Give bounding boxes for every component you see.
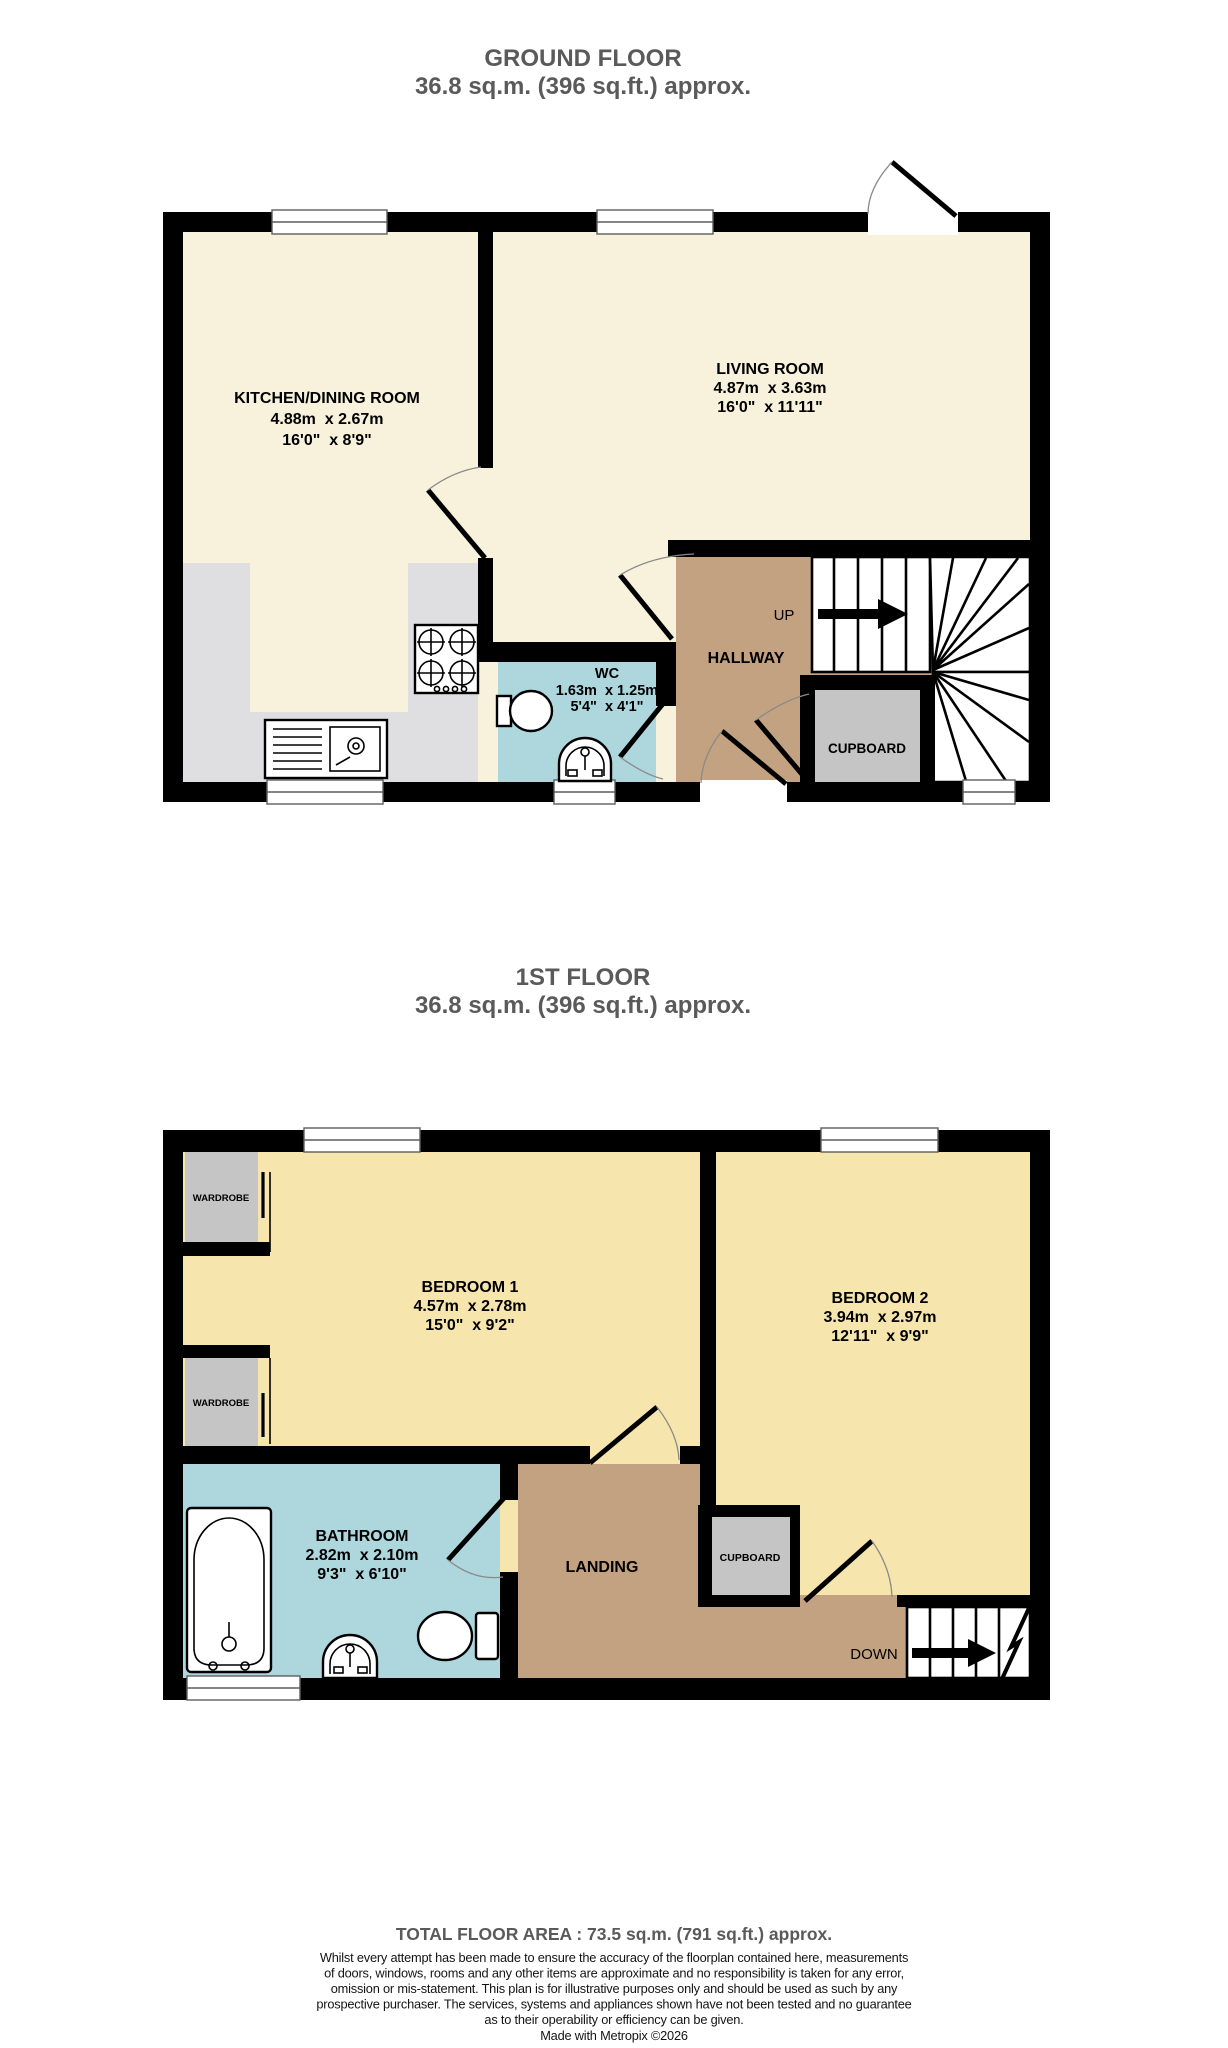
- entrance-door-opening-bottom: [700, 780, 787, 804]
- wc-metric: 1.63m x 1.25m: [556, 683, 658, 699]
- kitchen-imperial: 16'0" x 8'9": [282, 432, 372, 449]
- metropix-credit: Made with Metropix ©2026: [540, 2028, 688, 2043]
- window-bathroom-bottom: [187, 1676, 300, 1700]
- ground-floor-title: GROUND FLOOR 36.8 sq.m. (396 sq.ft.) app…: [415, 45, 751, 100]
- floorplan-canvas: GROUND FLOOR 36.8 sq.m. (396 sq.ft.) app…: [0, 0, 1228, 2048]
- disclaimer-line-1: Whilst every attempt has been made to en…: [320, 1950, 908, 1965]
- floorplan-page: GROUND FLOOR 36.8 sq.m. (396 sq.ft.) app…: [0, 0, 1228, 2048]
- bathroom-metric: 2.82m x 2.10m: [306, 1547, 419, 1564]
- ground-floor-title-line1: GROUND FLOOR: [484, 45, 681, 72]
- bathtub-icon: [187, 1508, 271, 1672]
- wardrobe-2: [183, 1345, 270, 1446]
- stairs-up-label: UP: [774, 607, 795, 624]
- cupboard-first-label: CUPBOARD: [720, 1552, 781, 1564]
- landing-label: LANDING: [566, 1559, 639, 1576]
- room-landing-fill-2: [698, 1595, 907, 1678]
- window-stairs-bottom: [963, 780, 1015, 804]
- wc-imperial: 5'4" x 4'1": [570, 699, 643, 715]
- disclaimer-line-4: prospective purchaser. The services, sys…: [316, 1997, 911, 2012]
- first-floor-plan: BEDROOM 1 4.57m x 2.78m 15'0" x 9'2" BED…: [163, 1128, 1050, 1700]
- wc-toilet-icon: [497, 691, 552, 731]
- hallway-label: HALLWAY: [708, 650, 785, 667]
- front-door-swing: [868, 162, 956, 216]
- wardrobe-1: [183, 1152, 270, 1256]
- bedroom1-imperial: 15'0" x 9'2": [425, 1317, 515, 1334]
- staircase-first: [907, 1607, 1030, 1679]
- kitchen-metric: 4.88m x 2.67m: [271, 411, 384, 428]
- ground-floor-plan: KITCHEN/DINING ROOM 4.88m x 2.67m 16'0" …: [163, 162, 1050, 804]
- ground-floor-title-line2: 36.8 sq.m. (396 sq.ft.) approx.: [415, 73, 751, 100]
- living-metric: 4.87m x 3.63m: [714, 380, 827, 397]
- cupboard-ground-label: CUPBOARD: [828, 741, 906, 756]
- window-bedroom2-top: [821, 1128, 938, 1152]
- bathroom-label: BATHROOM: [315, 1528, 408, 1545]
- window-kitchen-bottom: [267, 780, 383, 804]
- bathroom-basin-icon: [323, 1635, 377, 1678]
- kitchen-label: KITCHEN/DINING ROOM: [234, 390, 420, 407]
- first-floor-title-line1: 1ST FLOOR: [516, 964, 651, 991]
- living-label: LIVING ROOM: [716, 361, 824, 378]
- stairs-down-label: DOWN: [850, 1646, 898, 1663]
- disclaimer-line-5: as to their operability or efficiency ca…: [484, 2012, 743, 2027]
- bedroom2-imperial: 12'11" x 9'9": [831, 1328, 929, 1345]
- disclaimer-line-2: of doors, windows, rooms and any other i…: [324, 1966, 904, 1981]
- wardrobe-2-label: WARDROBE: [193, 1398, 249, 1409]
- wc-label: WC: [595, 666, 620, 682]
- disclaimer-line-3: omission or mis-statement. This plan is …: [331, 1981, 898, 1996]
- cupboard-ground: [800, 675, 935, 782]
- toilet-icon: [418, 1612, 498, 1660]
- window-kitchen-top: [272, 210, 387, 234]
- bedroom1-label: BEDROOM 1: [422, 1279, 519, 1296]
- window-living-top: [597, 210, 713, 234]
- bedroom1-metric: 4.57m x 2.78m: [414, 1298, 527, 1315]
- bathroom-imperial: 9'3" x 6'10": [317, 1566, 407, 1583]
- total-floor-area: TOTAL FLOOR AREA : 73.5 sq.m. (791 sq.ft…: [396, 1924, 832, 1944]
- first-floor-title: 1ST FLOOR 36.8 sq.m. (396 sq.ft.) approx…: [415, 964, 751, 1019]
- first-floor-title-line2: 36.8 sq.m. (396 sq.ft.) approx.: [415, 992, 751, 1019]
- bedroom2-label: BEDROOM 2: [832, 1290, 929, 1307]
- front-door-opening-top: [868, 209, 958, 235]
- bedroom2-metric: 3.94m x 2.97m: [824, 1309, 937, 1326]
- wardrobe-1-label: WARDROBE: [193, 1193, 249, 1204]
- cupboard-ground-fill: [815, 690, 920, 782]
- living-imperial: 16'0" x 11'11": [717, 399, 823, 416]
- hob-icon: [415, 625, 478, 693]
- footer: TOTAL FLOOR AREA : 73.5 sq.m. (791 sq.ft…: [316, 1924, 911, 2043]
- window-wc-bottom: [554, 780, 615, 804]
- kitchen-sink-icon: [265, 720, 387, 778]
- window-bedroom1-top: [304, 1128, 420, 1152]
- wc-basin-icon: [559, 738, 611, 781]
